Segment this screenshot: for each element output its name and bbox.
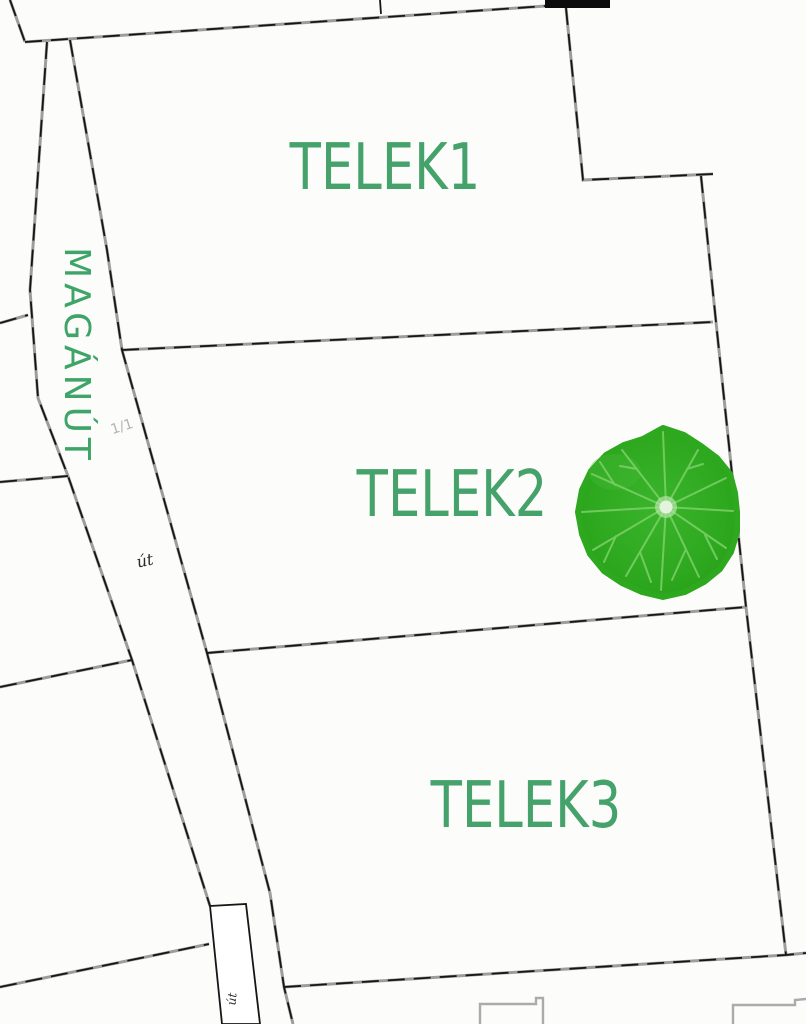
road-surface-label: út bbox=[135, 551, 155, 570]
road-strip-rectangle bbox=[210, 904, 260, 1024]
parcel-label-telek3: TELEK3 bbox=[431, 774, 622, 838]
building-outline-right bbox=[733, 999, 806, 1024]
top-edge-bar bbox=[545, 0, 610, 8]
building-outline-left bbox=[480, 998, 543, 1024]
parcel-label-telek1: TELEK1 bbox=[290, 136, 481, 200]
parcel-label-telek2: TELEK2 bbox=[357, 463, 548, 527]
road-surface-label-bottom: út bbox=[225, 992, 238, 1006]
road-name-label: MAGÁNÚT bbox=[58, 247, 94, 465]
map-canvas: TELEK1 TELEK2 TELEK3 MAGÁNÚT út út 1/1 bbox=[0, 0, 806, 1024]
boundary-ticks bbox=[380, 0, 381, 14]
leaf-icon bbox=[578, 428, 737, 597]
